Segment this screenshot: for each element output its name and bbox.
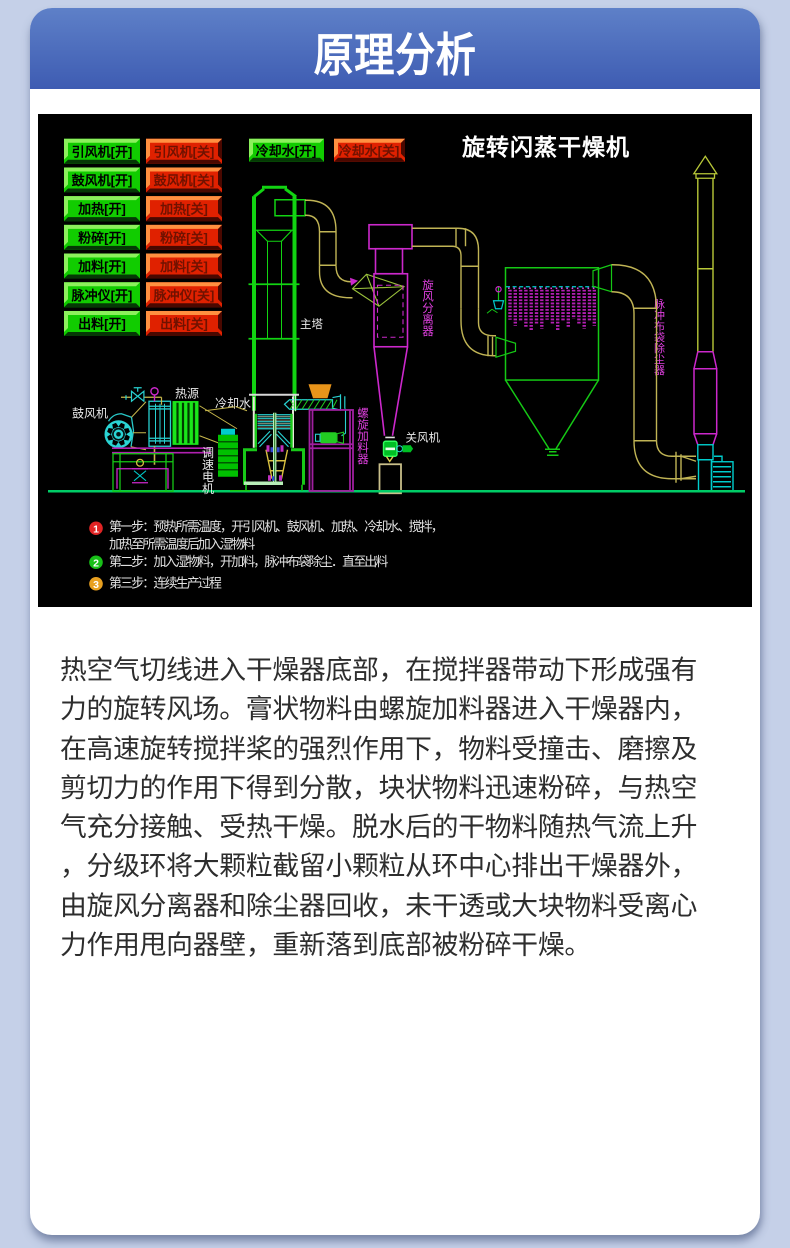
- svg-text:鼓风机: 鼓风机: [72, 406, 108, 420]
- svg-text:加热至所需温度后加入湿物料: 加热至所需温度后加入湿物料: [109, 536, 255, 551]
- svg-text:粉碎[关]: 粉碎[关]: [160, 230, 208, 245]
- svg-text:调速电机: 调速电机: [202, 445, 214, 495]
- svg-text:脉冲仪[开]: 脉冲仪[开]: [71, 287, 133, 302]
- svg-text:加料[关]: 加料[关]: [159, 259, 208, 274]
- svg-text:加料[开]: 加料[开]: [77, 259, 126, 274]
- svg-text:加热[开]: 加热[开]: [77, 201, 126, 216]
- svg-text:第一步：预热所需温度，开引风机、鼓风机、加热、冷却水、搅拌，: 第一步：预热所需温度，开引风机、鼓风机、加热、冷却水、搅拌，: [109, 518, 442, 533]
- svg-text:脉冲仪[关]: 脉冲仪[关]: [153, 287, 215, 302]
- svg-text:鼓风机[开]: 鼓风机[开]: [72, 172, 133, 187]
- svg-text:旋风分离器: 旋风分离器: [422, 277, 434, 337]
- svg-text:第二步：加入湿物料，开加料，脉冲布袋除尘．直至出料: 第二步：加入湿物料，开加料，脉冲布袋除尘．直至出料: [109, 553, 388, 568]
- svg-text:冷却水[开]: 冷却水[开]: [256, 143, 317, 158]
- svg-text:冷却水: 冷却水: [215, 396, 251, 410]
- svg-text:出料[关]: 出料[关]: [160, 316, 208, 331]
- svg-text:出料[开]: 出料[开]: [78, 316, 126, 331]
- svg-text:冷却水[关]: 冷却水[关]: [339, 143, 400, 158]
- svg-text:粉碎[开]: 粉碎[开]: [78, 230, 126, 245]
- svg-text:热源: 热源: [175, 386, 199, 400]
- svg-text:鼓风机[关]: 鼓风机[关]: [154, 172, 215, 187]
- svg-text:螺旋加料器: 螺旋加料器: [357, 406, 369, 465]
- svg-text:1: 1: [93, 523, 99, 535]
- svg-text:引风机[关]: 引风机[关]: [154, 144, 215, 159]
- svg-text:第三步：连续生产过程: 第三步：连续生产过程: [109, 575, 222, 590]
- svg-text:引风机[开]: 引风机[开]: [72, 144, 133, 159]
- svg-text:加热[关]: 加热[关]: [159, 201, 208, 216]
- svg-text:关风机: 关风机: [406, 430, 441, 444]
- svg-text:主塔: 主塔: [300, 317, 323, 330]
- svg-text:旋转闪蒸干燥机: 旋转闪蒸干燥机: [462, 133, 630, 159]
- svg-text:3: 3: [93, 578, 99, 590]
- svg-text:2: 2: [93, 557, 99, 569]
